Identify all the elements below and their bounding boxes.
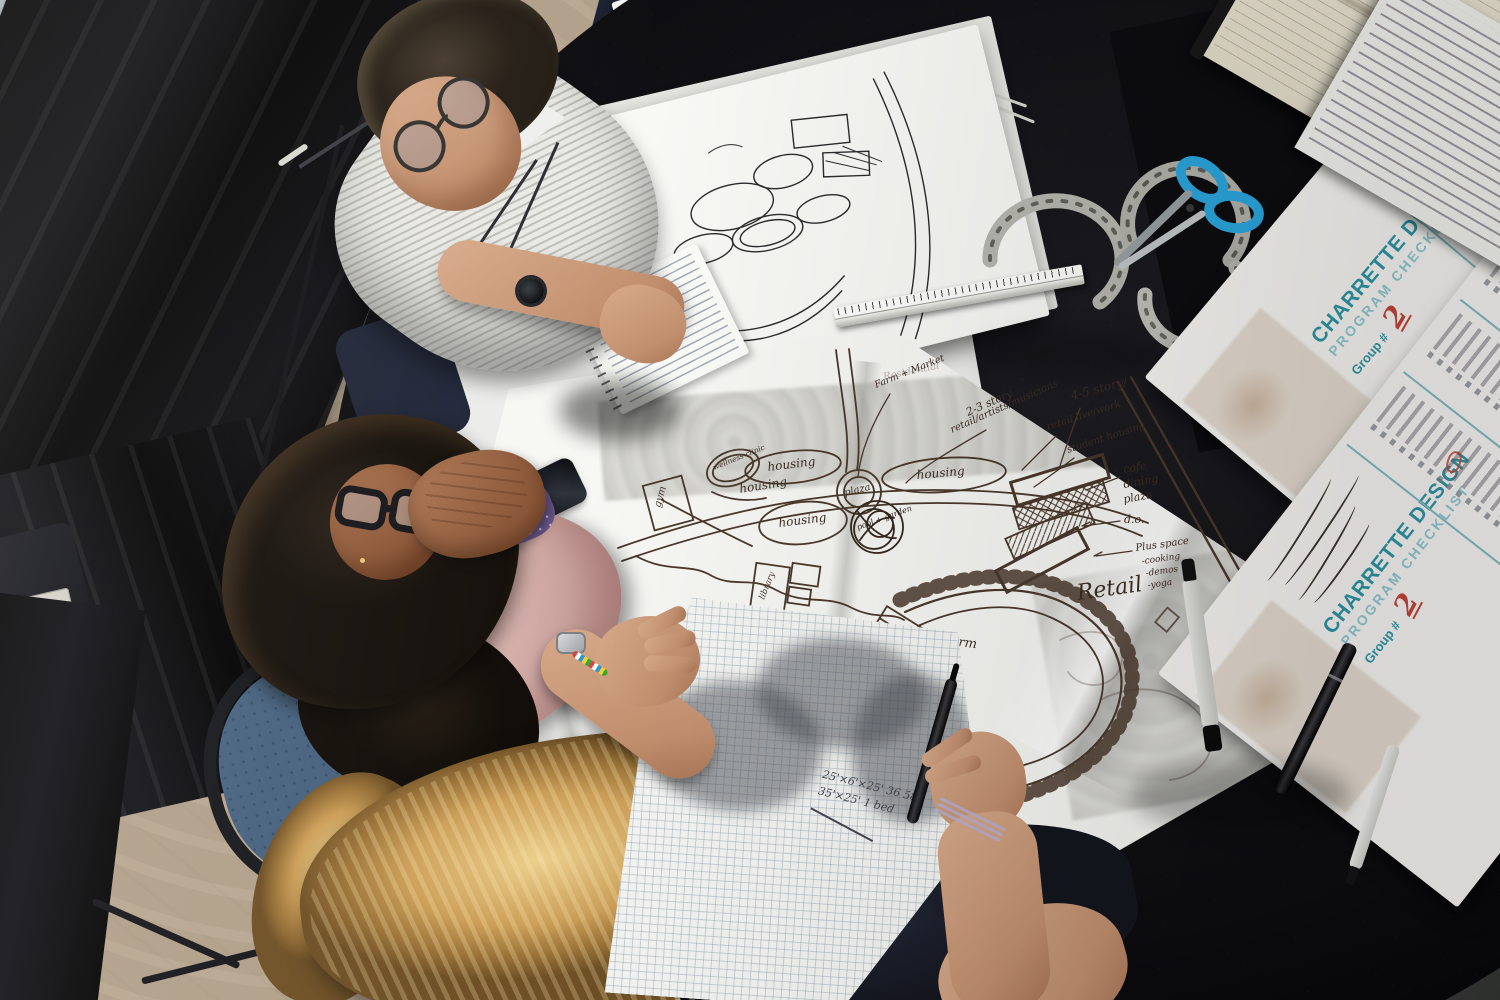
group-number-handwritten: 2: [1390, 590, 1423, 620]
leader-plus-space: [1094, 551, 1132, 556]
label-housing-1: housing: [767, 454, 817, 474]
finger: [644, 655, 697, 673]
note-plus-demos: -demos: [1145, 564, 1179, 579]
photo-design-charrette-table: gym wellness clinic housing housing hous…: [0, 0, 1500, 1000]
note-plus-yoga: -yoga: [1147, 578, 1173, 591]
blonde-watch: [558, 634, 584, 652]
note-arrow: [810, 807, 873, 842]
label-retail: Retail: [1074, 572, 1143, 606]
group-number-handwritten: 2: [1379, 302, 1412, 332]
man-striped-shirt: [318, 0, 718, 426]
road-approach: [662, 500, 752, 546]
label-gym: gym: [652, 485, 669, 509]
note-plus-space: Plus space: [1134, 536, 1190, 555]
man-watch: [518, 278, 544, 304]
gold-earring: [360, 558, 365, 563]
leader-farm-market: [858, 394, 890, 477]
road-north: [849, 349, 859, 470]
road-north: [836, 350, 847, 472]
blonde-right-hand-group: [900, 636, 1100, 1000]
label-library: library: [758, 570, 778, 601]
label-housing-3: housing: [916, 464, 965, 482]
label-housing-2: housing: [738, 475, 788, 496]
blonde-left-hand-group: [548, 608, 748, 838]
label-pool-garden: pool + garden: [856, 504, 913, 532]
label-plaza: plaza: [843, 482, 872, 499]
shadow: [1130, 760, 1350, 830]
leader-retail-live-work: [1022, 436, 1056, 470]
note-do: d.o.: [1124, 513, 1144, 526]
note-student-housing: student housing: [1066, 420, 1147, 456]
label-housing-4: housing: [778, 510, 828, 530]
note-retail-live-work: retail live/work: [1046, 399, 1123, 433]
note-plaza: plaza: [1122, 488, 1153, 506]
